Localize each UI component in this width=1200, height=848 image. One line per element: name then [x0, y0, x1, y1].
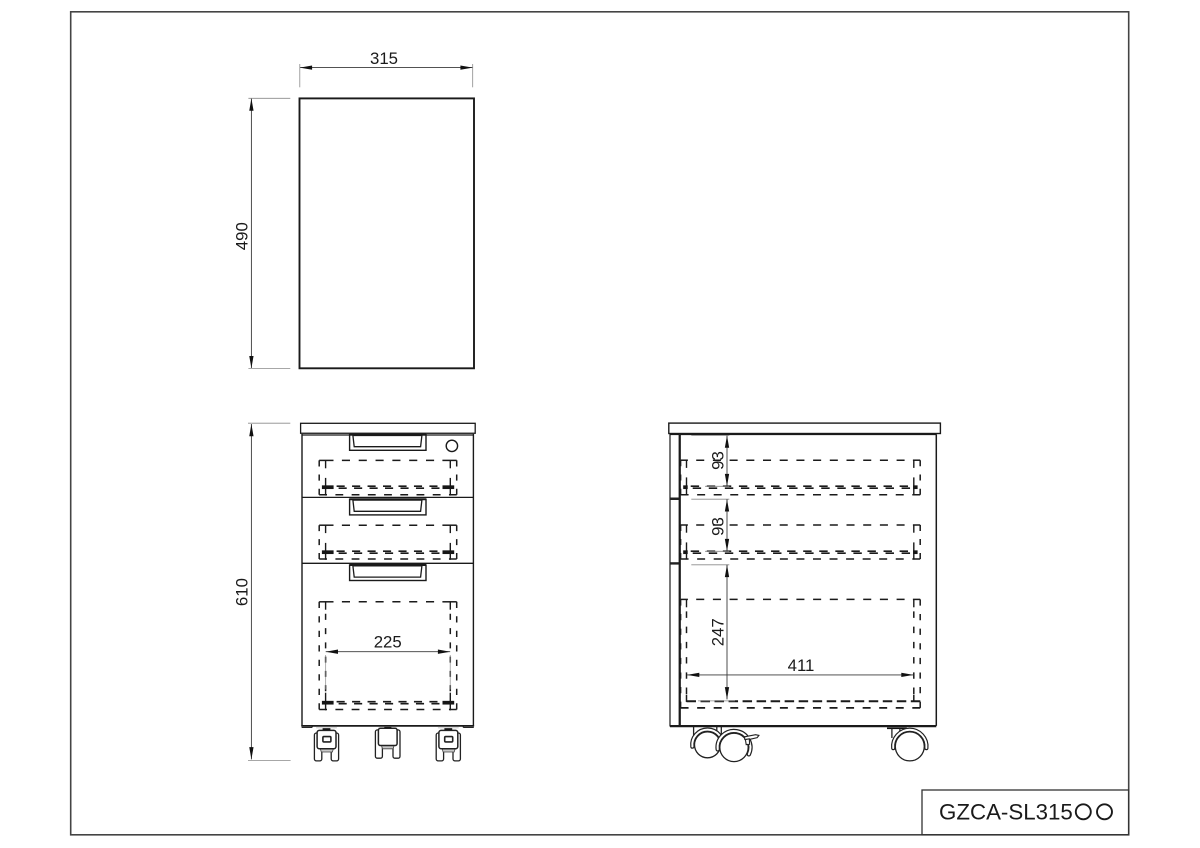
svg-text:411: 411	[788, 656, 815, 675]
svg-text:93: 93	[708, 517, 727, 536]
svg-text:610: 610	[233, 578, 252, 606]
svg-text:225: 225	[374, 632, 402, 651]
svg-text:315: 315	[370, 49, 398, 68]
svg-text:GZCA-SL315: GZCA-SL315	[939, 800, 1073, 825]
svg-text:490: 490	[233, 222, 252, 250]
svg-text:247: 247	[708, 618, 727, 646]
svg-text:93: 93	[708, 451, 727, 470]
